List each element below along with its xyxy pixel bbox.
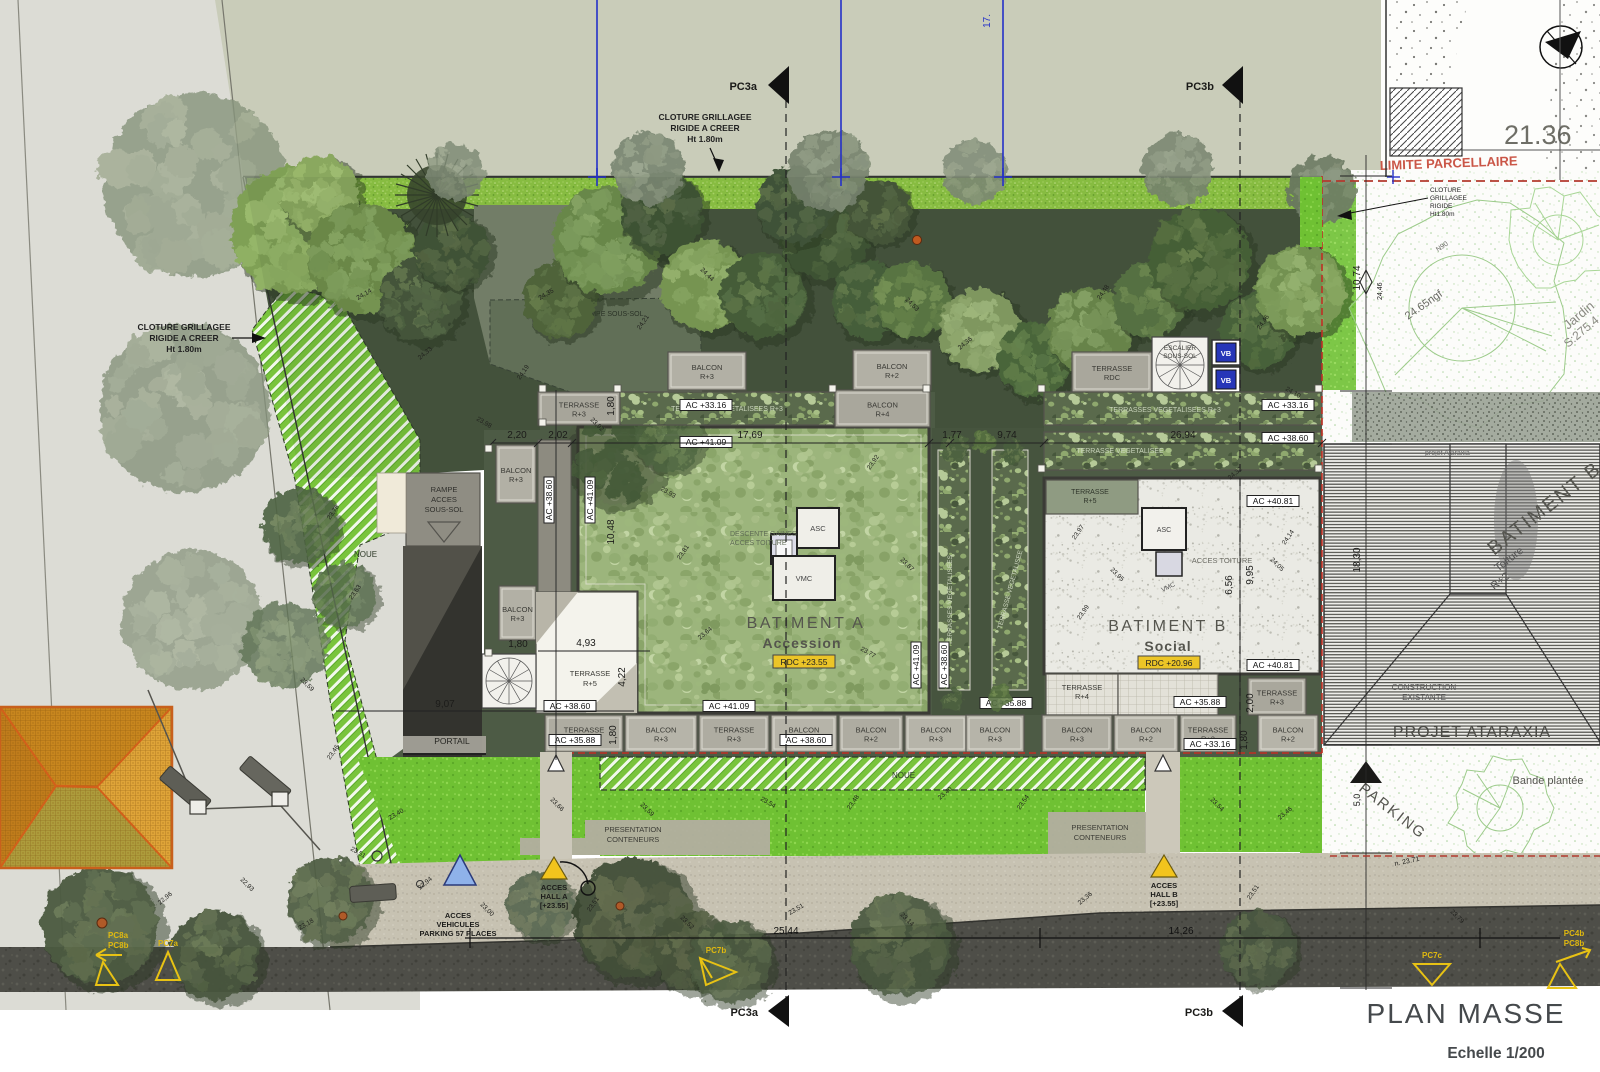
- svg-text:25,44: 25,44: [773, 926, 798, 937]
- svg-text:AC +33.16: AC +33.16: [1190, 739, 1231, 749]
- svg-text:Ht 1.80m: Ht 1.80m: [166, 344, 202, 354]
- svg-text:R+3: R+3: [572, 410, 586, 419]
- svg-text:AC +38.60: AC +38.60: [939, 645, 949, 686]
- svg-text:BALCON: BALCON: [1273, 726, 1304, 735]
- svg-text:PRESENTATION: PRESENTATION: [1071, 823, 1128, 832]
- svg-text:Accession: Accession: [762, 635, 841, 651]
- svg-text:RDC +23.55: RDC +23.55: [780, 657, 827, 667]
- svg-text:BALCON: BALCON: [692, 363, 723, 372]
- svg-text:RIGIDE A CREER: RIGIDE A CREER: [670, 123, 739, 133]
- svg-text:18,30: 18,30: [1352, 547, 1363, 572]
- svg-text:2,02: 2,02: [548, 430, 568, 441]
- svg-text:PROJET ATARAXIA: PROJET ATARAXIA: [1393, 724, 1551, 741]
- svg-text:TERRASSES VEGETALISEES R+3: TERRASSES VEGETALISEES R+3: [1109, 407, 1221, 414]
- svg-text:2,00: 2,00: [1245, 693, 1256, 713]
- svg-text:AC +38.60: AC +38.60: [786, 735, 827, 745]
- svg-text:TERRASSE: TERRASSE: [564, 726, 604, 735]
- svg-text:Echelle 1/200: Echelle 1/200: [1447, 1045, 1544, 1062]
- svg-text:AC +33.16: AC +33.16: [686, 400, 727, 410]
- svg-text:1,80: 1,80: [508, 639, 528, 650]
- svg-text:1,77: 1,77: [942, 430, 962, 441]
- svg-text:R+3: R+3: [654, 735, 668, 744]
- svg-text:TERRASSE: TERRASSE: [1062, 683, 1102, 692]
- svg-text:9,74: 9,74: [997, 430, 1017, 441]
- svg-text:VB: VB: [1221, 376, 1232, 385]
- svg-text:CONTENEURS: CONTENEURS: [607, 835, 660, 844]
- svg-text:AC +41.09: AC +41.09: [686, 437, 727, 447]
- svg-text:TERRASSE: TERRASSE: [1071, 489, 1109, 496]
- svg-text:BALCON: BALCON: [502, 605, 533, 614]
- svg-text:PC8b: PC8b: [1564, 939, 1585, 948]
- svg-text:PC8a: PC8a: [108, 931, 129, 940]
- svg-text:AC +41.09: AC +41.09: [709, 701, 750, 711]
- svg-text:PC4b: PC4b: [1564, 929, 1585, 938]
- svg-text:BALCON: BALCON: [1131, 726, 1162, 735]
- svg-text:CLOTURE: CLOTURE: [1430, 187, 1462, 194]
- svg-text:RIGIDE: RIGIDE: [1430, 203, 1453, 210]
- svg-text:BALCON: BALCON: [501, 466, 532, 475]
- svg-text:[+23.55]: [+23.55]: [540, 901, 569, 910]
- svg-text:17.: 17.: [982, 14, 993, 28]
- svg-text:BALCON: BALCON: [980, 726, 1011, 735]
- svg-text:17,69: 17,69: [737, 430, 762, 441]
- svg-text:TERRASSE: TERRASSE: [570, 669, 610, 678]
- svg-text:CLOTURE GRILLAGEE: CLOTURE GRILLAGEE: [137, 322, 230, 332]
- svg-text:VB: VB: [1221, 349, 1232, 358]
- svg-text:CONSTRUCTION: CONSTRUCTION: [1392, 683, 1457, 692]
- svg-text:R+2: R+2: [864, 735, 878, 744]
- svg-text:R+2: R+2: [885, 371, 899, 380]
- svg-text:R+4: R+4: [1075, 692, 1089, 701]
- svg-text:6,56: 6,56: [1224, 575, 1235, 595]
- svg-text:BALCON: BALCON: [921, 726, 952, 735]
- svg-text:4,93: 4,93: [576, 638, 596, 649]
- svg-text:2,20: 2,20: [507, 430, 527, 441]
- svg-text:DESCENTE GAINES: DESCENTE GAINES: [730, 531, 797, 538]
- svg-text:BALCON: BALCON: [646, 726, 677, 735]
- svg-text:4,22: 4,22: [617, 667, 628, 687]
- svg-text:ESCALIER: ESCALIER: [1164, 345, 1196, 352]
- svg-text:PORTAIL: PORTAIL: [434, 736, 470, 746]
- svg-text:BALCON: BALCON: [1062, 726, 1093, 735]
- svg-text:PRESENTATION: PRESENTATION: [604, 825, 661, 834]
- svg-text:HALL B: HALL B: [1150, 890, 1178, 899]
- svg-text:PARKING 57 PLACES: PARKING 57 PLACES: [420, 929, 497, 938]
- svg-text:TERRASSE: TERRASSE: [559, 401, 599, 410]
- svg-text:Bande plantée: Bande plantée: [1513, 775, 1584, 787]
- svg-text:ACCES: ACCES: [445, 911, 471, 920]
- svg-text:VMC: VMC: [796, 574, 813, 583]
- svg-text:TERRASSE VEGETALISEE: TERRASSE VEGETALISEE: [1076, 448, 1164, 455]
- svg-text:9,07: 9,07: [435, 699, 455, 710]
- svg-text:BATIMENT B: BATIMENT B: [1108, 618, 1228, 635]
- svg-text:NOUE: NOUE: [354, 550, 377, 559]
- svg-text:RAMPE: RAMPE: [431, 485, 458, 494]
- svg-text:VEHICULES: VEHICULES: [437, 920, 480, 929]
- svg-text:BALCON: BALCON: [877, 362, 908, 371]
- svg-text:ASC: ASC: [810, 524, 826, 533]
- svg-text:21.36: 21.36: [1504, 120, 1572, 150]
- svg-text:ACCES TOITURE: ACCES TOITURE: [1192, 556, 1253, 565]
- svg-text:AC +38.60: AC +38.60: [544, 480, 554, 521]
- svg-text:CLOTURE GRILLAGEE: CLOTURE GRILLAGEE: [658, 112, 751, 122]
- svg-text:10,74: 10,74: [1352, 265, 1363, 290]
- svg-text:PLAN MASSE: PLAN MASSE: [1367, 998, 1566, 1029]
- svg-text:14,26: 14,26: [1168, 926, 1193, 937]
- svg-text:1,80: 1,80: [606, 396, 617, 416]
- svg-text:AC +38.60: AC +38.60: [1268, 433, 1309, 443]
- svg-text:R+3: R+3: [988, 735, 1002, 744]
- svg-text:1,80: 1,80: [1239, 730, 1250, 750]
- svg-text:ASC: ASC: [1157, 527, 1171, 534]
- svg-text:Ht1.80m: Ht1.80m: [1430, 211, 1455, 218]
- svg-text:ACCES: ACCES: [1151, 881, 1177, 890]
- svg-text:AC +35.88: AC +35.88: [555, 735, 596, 745]
- svg-text:10,48: 10,48: [606, 519, 617, 544]
- svg-text:R+3: R+3: [700, 372, 714, 381]
- svg-text:R+2: R+2: [1281, 735, 1295, 744]
- svg-text:ACCES: ACCES: [431, 495, 457, 504]
- svg-text:24,46: 24,46: [1377, 282, 1384, 300]
- svg-text:PC7b: PC7b: [706, 946, 727, 955]
- svg-text:TERRASSES VEGETALISEES: TERRASSES VEGETALISEES: [947, 554, 954, 644]
- svg-text:PC3b: PC3b: [1186, 81, 1214, 93]
- svg-text:[+23.55]: [+23.55]: [1150, 899, 1179, 908]
- svg-text:R+5: R+5: [1083, 498, 1096, 505]
- svg-text:EXISTANTE: EXISTANTE: [1402, 693, 1446, 702]
- svg-text:TERRASSE: TERRASSE: [1092, 364, 1132, 373]
- svg-text:TERRASSE: TERRASSE: [714, 726, 754, 735]
- svg-text:R+4: R+4: [876, 410, 890, 419]
- svg-text:NOUE: NOUE: [892, 771, 915, 780]
- svg-text:R+5: R+5: [583, 679, 597, 688]
- svg-text:R+3: R+3: [509, 475, 523, 484]
- svg-text:AC +40.81: AC +40.81: [1253, 496, 1294, 506]
- svg-text:RIGIDE A CREER: RIGIDE A CREER: [149, 333, 218, 343]
- svg-text:R+3: R+3: [1070, 735, 1084, 744]
- svg-text:PC7a: PC7a: [158, 939, 179, 948]
- svg-text:ACCES TOITURE: ACCES TOITURE: [730, 540, 787, 547]
- svg-text:AC +33.16: AC +33.16: [1268, 400, 1309, 410]
- svg-text:AC +41.09: AC +41.09: [911, 645, 921, 686]
- svg-text:PC3b: PC3b: [1185, 1007, 1213, 1019]
- svg-text:R+3: R+3: [511, 614, 525, 623]
- svg-text:Social: Social: [1144, 638, 1191, 654]
- svg-text:26,94: 26,94: [1170, 430, 1195, 441]
- svg-text:R+2: R+2: [1139, 735, 1153, 744]
- svg-text:SOUS-SOL: SOUS-SOL: [425, 505, 464, 514]
- svg-text:PC7c: PC7c: [1422, 951, 1443, 960]
- svg-text:BALCON: BALCON: [867, 401, 898, 410]
- svg-text:AC +41.09: AC +41.09: [585, 480, 595, 521]
- svg-text:TERRASSE: TERRASSE: [1257, 689, 1297, 698]
- svg-text:RDC +20.96: RDC +20.96: [1145, 658, 1192, 668]
- svg-text:AC +35.88: AC +35.88: [1180, 697, 1221, 707]
- svg-text:BATIMENT A: BATIMENT A: [747, 615, 866, 632]
- svg-text:AC +40.81: AC +40.81: [1253, 660, 1294, 670]
- svg-text:PC8b: PC8b: [108, 941, 129, 950]
- svg-text:9,95: 9,95: [1245, 565, 1256, 585]
- svg-text:Ht 1.80m: Ht 1.80m: [687, 134, 723, 144]
- svg-text:PC3a: PC3a: [730, 1007, 758, 1019]
- svg-text:SOUS-SOL: SOUS-SOL: [1163, 353, 1197, 360]
- svg-text:5,0: 5,0: [1352, 794, 1362, 807]
- svg-text:ACCES: ACCES: [541, 883, 567, 892]
- svg-text:HALL A: HALL A: [540, 892, 568, 901]
- svg-text:RDC: RDC: [1104, 373, 1121, 382]
- svg-text:BALCON: BALCON: [789, 726, 820, 735]
- svg-text:GRILLAGEE: GRILLAGEE: [1430, 195, 1468, 202]
- svg-text:R+3: R+3: [727, 735, 741, 744]
- svg-text:R+3: R+3: [1270, 698, 1284, 707]
- svg-text:projet Ataraxia: projet Ataraxia: [1425, 450, 1470, 457]
- svg-text:PC3a: PC3a: [729, 81, 757, 93]
- svg-text:R+3: R+3: [929, 735, 943, 744]
- svg-text:BALCON: BALCON: [856, 726, 887, 735]
- svg-text:TERRASSE: TERRASSE: [1188, 726, 1228, 735]
- svg-text:1,80: 1,80: [608, 725, 619, 745]
- svg-text:CONTENEURS: CONTENEURS: [1074, 833, 1127, 842]
